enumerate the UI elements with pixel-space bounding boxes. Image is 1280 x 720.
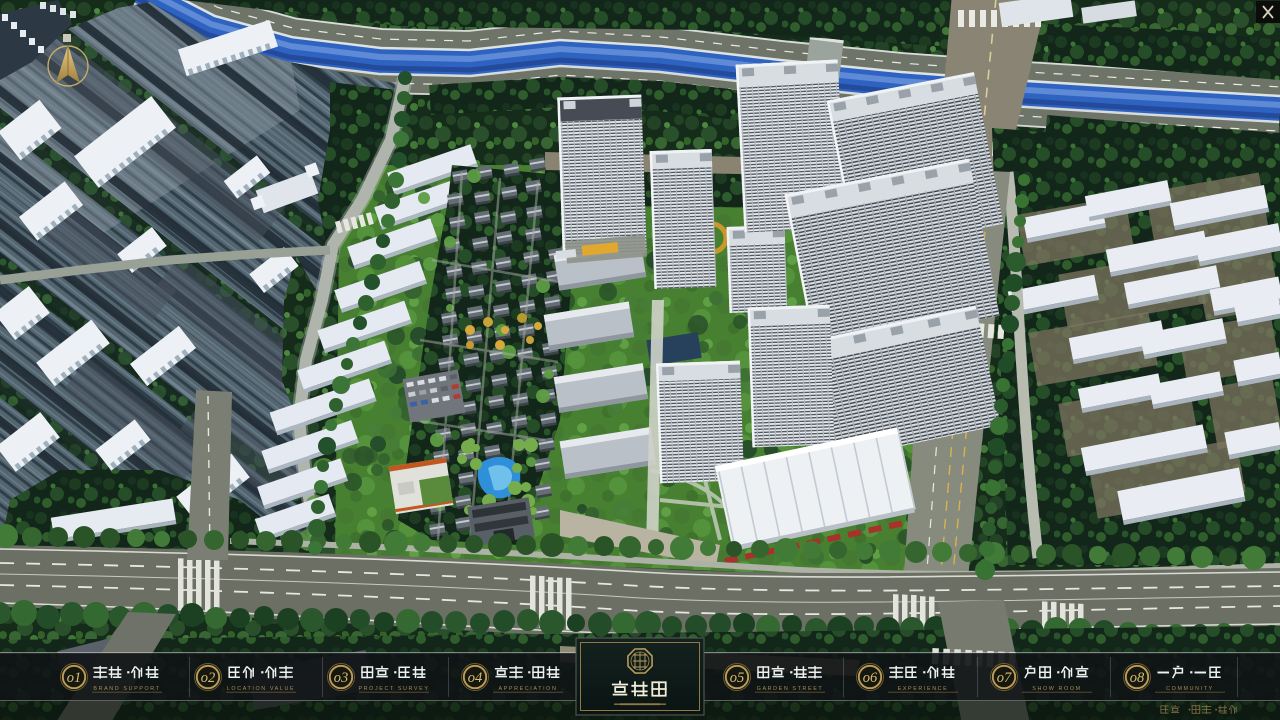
svg-text:EXPERIENCE: EXPERIENCE <box>898 686 949 692</box>
svg-text:SHOW ROOM: SHOW ROOM <box>1032 686 1081 692</box>
svg-text:o6: o6 <box>863 670 878 686</box>
svg-text:o1: o1 <box>67 670 82 686</box>
svg-text:PROJECT SURVEY: PROJECT SURVEY <box>358 686 429 692</box>
svg-text:LOCATION VALUE: LOCATION VALUE <box>227 686 295 692</box>
svg-text:o7: o7 <box>997 670 1012 686</box>
svg-text:BRAND SUPPORT: BRAND SUPPORT <box>93 686 160 692</box>
svg-text:o4: o4 <box>468 670 483 686</box>
svg-text:o2: o2 <box>201 670 216 686</box>
svg-text:o5: o5 <box>730 670 745 686</box>
svg-text:GARDEN STREET: GARDEN STREET <box>757 686 824 692</box>
svg-text:COMMUNITY: COMMUNITY <box>1166 686 1214 692</box>
svg-text:o8: o8 <box>1130 670 1145 686</box>
svg-text:o3: o3 <box>334 670 349 686</box>
svg-text:APPRECIATION: APPRECIATION <box>499 686 558 692</box>
